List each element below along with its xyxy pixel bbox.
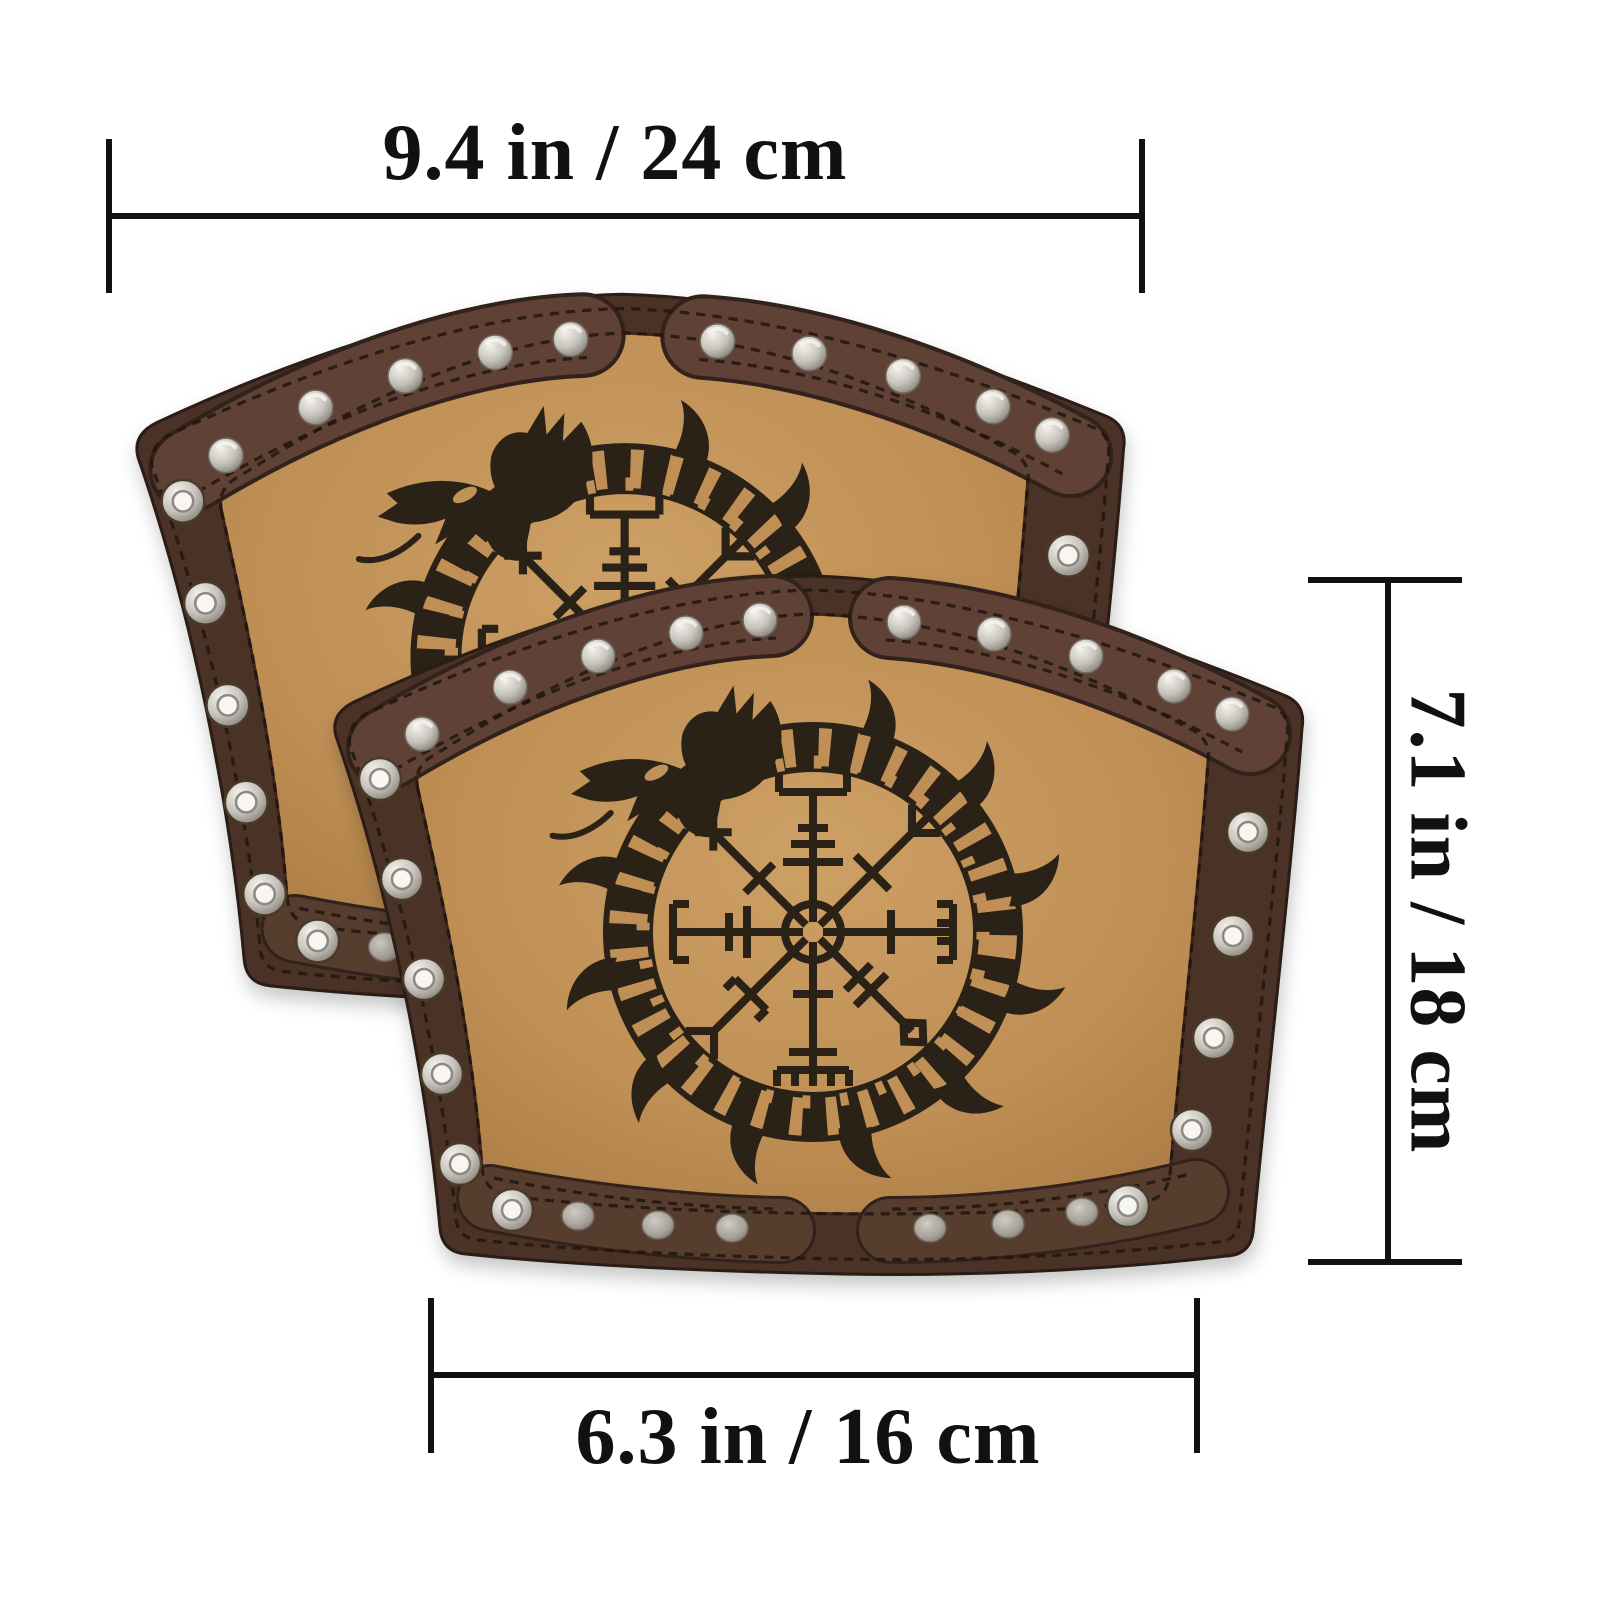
front-bracer <box>335 576 1303 1274</box>
top-width-tick-left <box>106 139 112 293</box>
product-dimension-diagram: 9.4 in / 24 cm 7.1 in / 18 cm 6.3 in / 1… <box>0 0 1600 1600</box>
bottom-width-tick-right <box>1194 1298 1200 1453</box>
bottom-width-tick-left <box>428 1298 434 1453</box>
bottom-width-label: 6.3 in / 16 cm <box>575 1392 1040 1483</box>
bracers-illustration <box>0 0 1600 1600</box>
height-tick-top <box>1308 577 1462 583</box>
top-width-line <box>109 213 1145 219</box>
height-tick-bottom <box>1308 1259 1462 1265</box>
top-width-tick-right <box>1139 139 1145 293</box>
top-width-label: 9.4 in / 24 cm <box>382 108 847 199</box>
height-line <box>1385 580 1391 1262</box>
height-label: 7.1 in / 18 cm <box>1392 688 1483 1153</box>
bottom-width-line <box>431 1372 1200 1378</box>
